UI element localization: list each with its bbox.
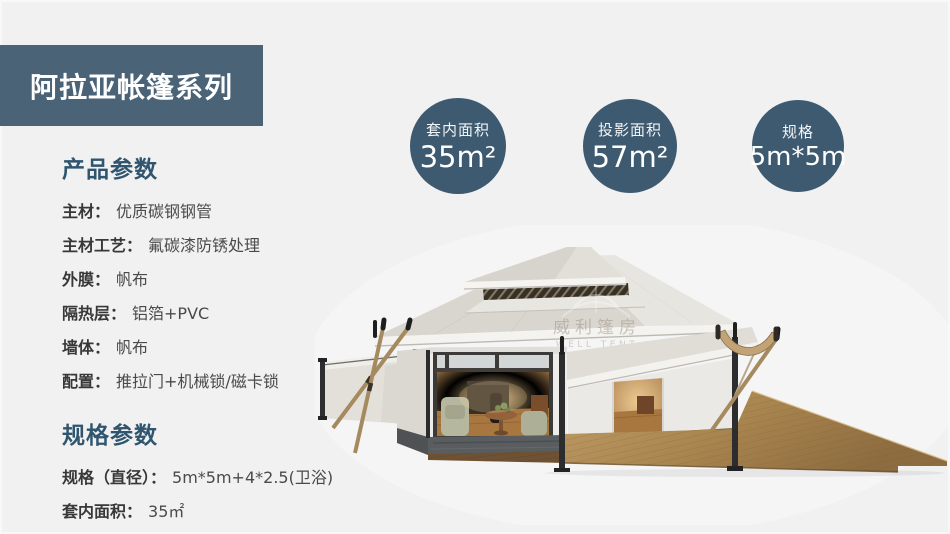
- param-label: 墙体：: [62, 338, 110, 357]
- series-title: 阿拉亚帐篷系列: [30, 66, 233, 106]
- badge-label: 规格: [782, 121, 814, 142]
- badge-label: 套内面积: [426, 119, 490, 140]
- glass-wall: [433, 352, 553, 437]
- param-value: 氟碳漆防锈处理: [148, 236, 260, 255]
- param-label: 配置：: [62, 372, 110, 391]
- badge-label: 投影面积: [598, 119, 662, 140]
- tent-illustration: 威利篷房 WELL TENT: [315, 225, 950, 525]
- title-banner: 阿拉亚帐篷系列: [0, 45, 263, 126]
- param-value: 铝箔+PVC: [132, 304, 209, 323]
- param-value: 35㎡: [148, 502, 184, 521]
- param-label: 主材工艺：: [62, 236, 142, 255]
- param-value: 帆布: [116, 270, 148, 289]
- param-value: 优质碳钢钢管: [116, 202, 212, 221]
- param-label: 规格（直径）：: [62, 468, 166, 487]
- param-label: 套内面积：: [62, 502, 142, 521]
- param-value: 帆布: [116, 338, 148, 357]
- badge-size: 规格 5m*5m: [752, 100, 844, 192]
- param-row: 主材：优质碳钢钢管: [62, 198, 392, 222]
- interior-scene: [437, 372, 549, 436]
- annex-doorway: [613, 378, 663, 434]
- badge-value: 5m*5m: [750, 144, 847, 171]
- spec-sheet-page: 阿拉亚帐篷系列 产品参数 主材：优质碳钢钢管 主材工艺：氟碳漆防锈处理 外膜：帆…: [0, 0, 950, 534]
- watermark-cn: 威利篷房: [553, 318, 641, 338]
- param-label: 隔热层：: [62, 304, 126, 323]
- param-label: 外膜：: [62, 270, 110, 289]
- badge-value: 57m²: [592, 142, 669, 172]
- param-value: 5m*5m+4*2.5(卫浴): [172, 468, 333, 487]
- badge-value: 35m²: [420, 142, 497, 172]
- badge-interior-area: 套内面积 35m²: [410, 98, 506, 194]
- param-label: 主材：: [62, 202, 110, 221]
- badge-projection-area: 投影面积 57m²: [583, 99, 677, 193]
- product-params-heading: 产品参数: [62, 150, 392, 184]
- param-value: 推拉门+机械锁/磁卡锁: [116, 372, 279, 391]
